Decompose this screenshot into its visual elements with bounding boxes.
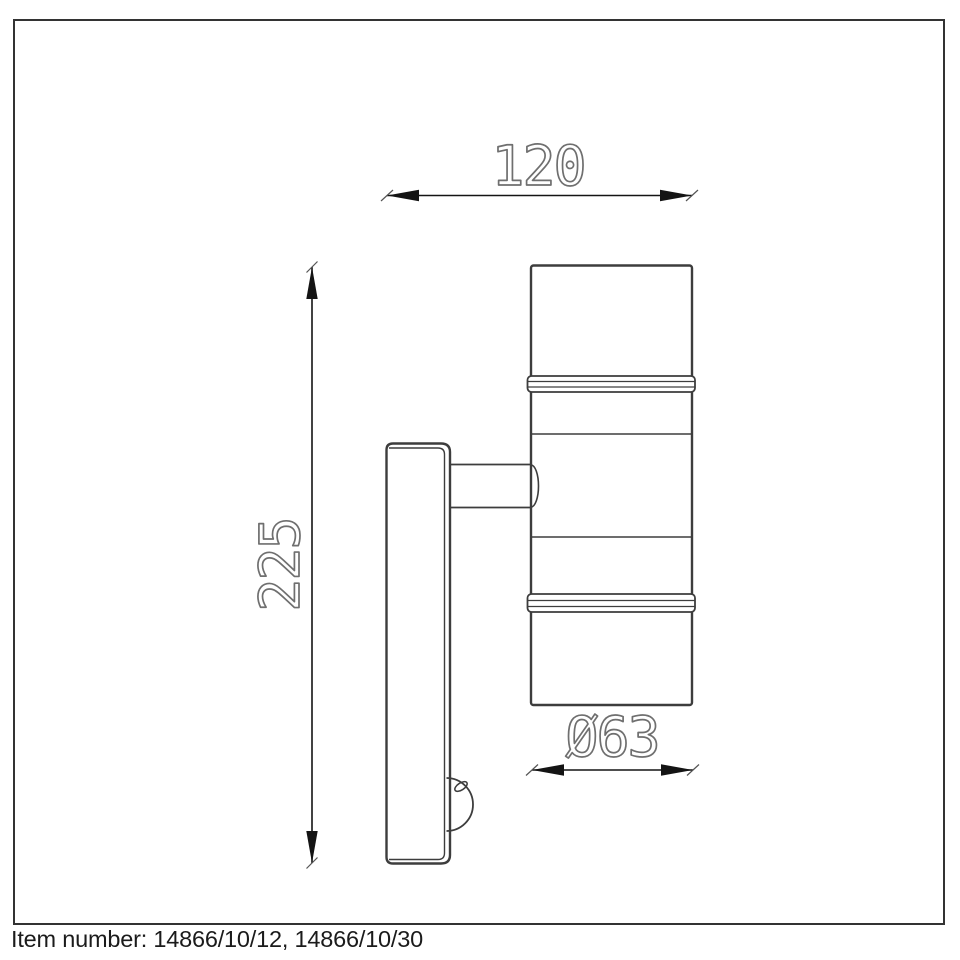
item-number-caption: Item number: 14866/10/12, 14866/10/30 bbox=[11, 926, 423, 953]
lamp-body bbox=[531, 266, 692, 706]
ribbed-ring-bottom-outline bbox=[528, 594, 696, 612]
dimension-height-label: 225 bbox=[248, 518, 312, 611]
wall-plate bbox=[387, 444, 451, 864]
page: 120 225 Ø63 Item number: 14866/10/12 bbox=[0, 0, 960, 960]
ribbed-ring-top bbox=[528, 376, 696, 392]
technical-drawing: 120 225 Ø63 bbox=[0, 0, 960, 960]
wall-plate-outline bbox=[387, 444, 451, 864]
dimension-diameter-label: Ø63 bbox=[565, 705, 658, 769]
ribbed-ring-top-outline bbox=[528, 376, 696, 392]
mounting-arm bbox=[449, 465, 539, 508]
motion-sensor-highlight bbox=[453, 780, 469, 793]
ribbed-ring-bottom bbox=[528, 594, 696, 612]
lamp-body-outline bbox=[531, 266, 692, 706]
dimension-height: 225 bbox=[248, 262, 318, 869]
dimension-diameter: Ø63 bbox=[526, 705, 699, 776]
dimension-width: 120 bbox=[381, 134, 698, 201]
dimension-width-label: 120 bbox=[491, 134, 584, 198]
